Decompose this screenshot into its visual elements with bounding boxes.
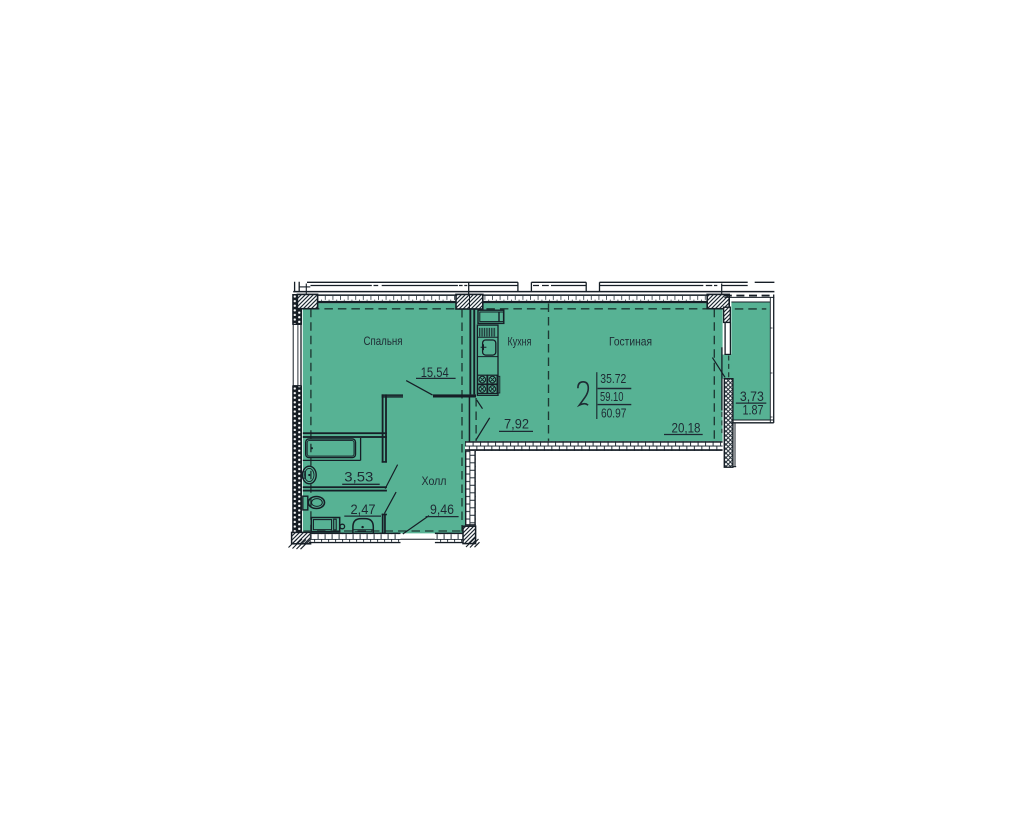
- svg-text:Гостиная: Гостиная: [609, 335, 652, 349]
- svg-text:1.87: 1.87: [743, 403, 764, 418]
- svg-text:7,92: 7,92: [504, 417, 529, 432]
- svg-text:Спальня: Спальня: [364, 334, 403, 348]
- svg-text:15,54: 15,54: [421, 365, 449, 380]
- svg-text:20,18: 20,18: [672, 420, 701, 435]
- svg-text:Кухня: Кухня: [508, 335, 532, 349]
- svg-text:60.97: 60.97: [601, 407, 626, 421]
- svg-text:9,46: 9,46: [430, 502, 454, 517]
- svg-text:Холл: Холл: [422, 474, 447, 488]
- svg-text:2,47: 2,47: [351, 502, 376, 517]
- svg-text:59.10: 59.10: [600, 390, 624, 404]
- svg-text:3,53: 3,53: [344, 470, 373, 485]
- svg-text:35.72: 35.72: [600, 372, 626, 386]
